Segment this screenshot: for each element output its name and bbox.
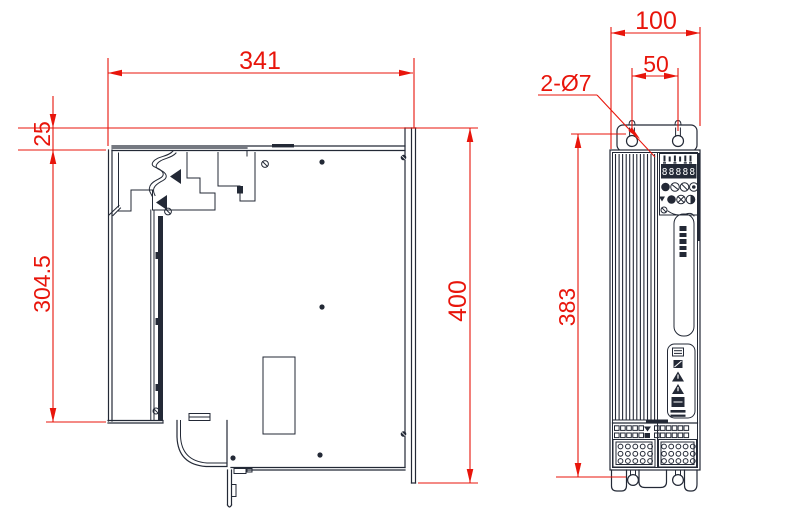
side-label-plate	[263, 357, 295, 434]
side-inner-strips	[151, 210, 163, 421]
case-screw	[230, 455, 235, 460]
dim-50: 50	[632, 51, 678, 79]
front-view: 88888	[610, 121, 700, 492]
seven-segment-display: 88888	[662, 165, 697, 179]
terminal-tab	[646, 420, 668, 424]
keyhole-slot	[628, 470, 639, 485]
dim-label-304-5: 304.5	[29, 255, 55, 313]
dim-label-2xd7: 2-Ø7	[540, 70, 591, 96]
top-mounting-bracket	[617, 121, 697, 152]
dim-label-25: 25	[29, 121, 55, 147]
button	[667, 195, 676, 204]
clip-arrow	[170, 169, 181, 184]
keyhole-slot	[673, 470, 684, 485]
case-screw	[319, 159, 324, 164]
side-top-edge	[112, 144, 405, 156]
dim-341: 341	[108, 47, 413, 76]
dim-400: 400	[444, 128, 473, 483]
dim-304-5: 304.5	[29, 255, 56, 422]
display-digits: 88888	[662, 167, 697, 178]
label-block	[672, 397, 685, 407]
side-front-face	[108, 150, 163, 423]
side-rear-flange	[401, 128, 416, 483]
side-bottom-edge	[231, 468, 405, 471]
clip-arrow	[156, 195, 167, 210]
side-bracket-detail	[109, 151, 268, 216]
side-bottom-protrusion	[228, 469, 253, 508]
bracket-screw	[165, 208, 172, 215]
dim-label-341: 341	[239, 47, 281, 75]
top-tab	[272, 144, 294, 147]
bracket-screw	[262, 161, 269, 168]
case-screw	[317, 452, 322, 457]
side-view	[108, 128, 416, 507]
brand-logo	[680, 226, 687, 257]
shock-hazard-icon	[674, 360, 683, 368]
side-step-block	[177, 414, 227, 467]
drawing-canvas: 88888	[0, 0, 805, 516]
dim-label-100: 100	[635, 7, 677, 35]
dim-label-50: 50	[643, 51, 669, 77]
dim-2xd7-leader: 2-Ø7	[538, 70, 655, 157]
bottom-mounting-bracket	[612, 470, 698, 491]
dimensions: 341 25 304.5 400 100	[18, 7, 700, 483]
dimension-drawing: 88888	[0, 0, 805, 516]
dim-100: 100	[611, 7, 700, 36]
case-screw	[319, 304, 324, 309]
dim-label-383: 383	[554, 288, 580, 326]
dim-label-400: 400	[444, 280, 472, 322]
dim-383: 383	[554, 134, 581, 477]
button	[661, 183, 670, 192]
